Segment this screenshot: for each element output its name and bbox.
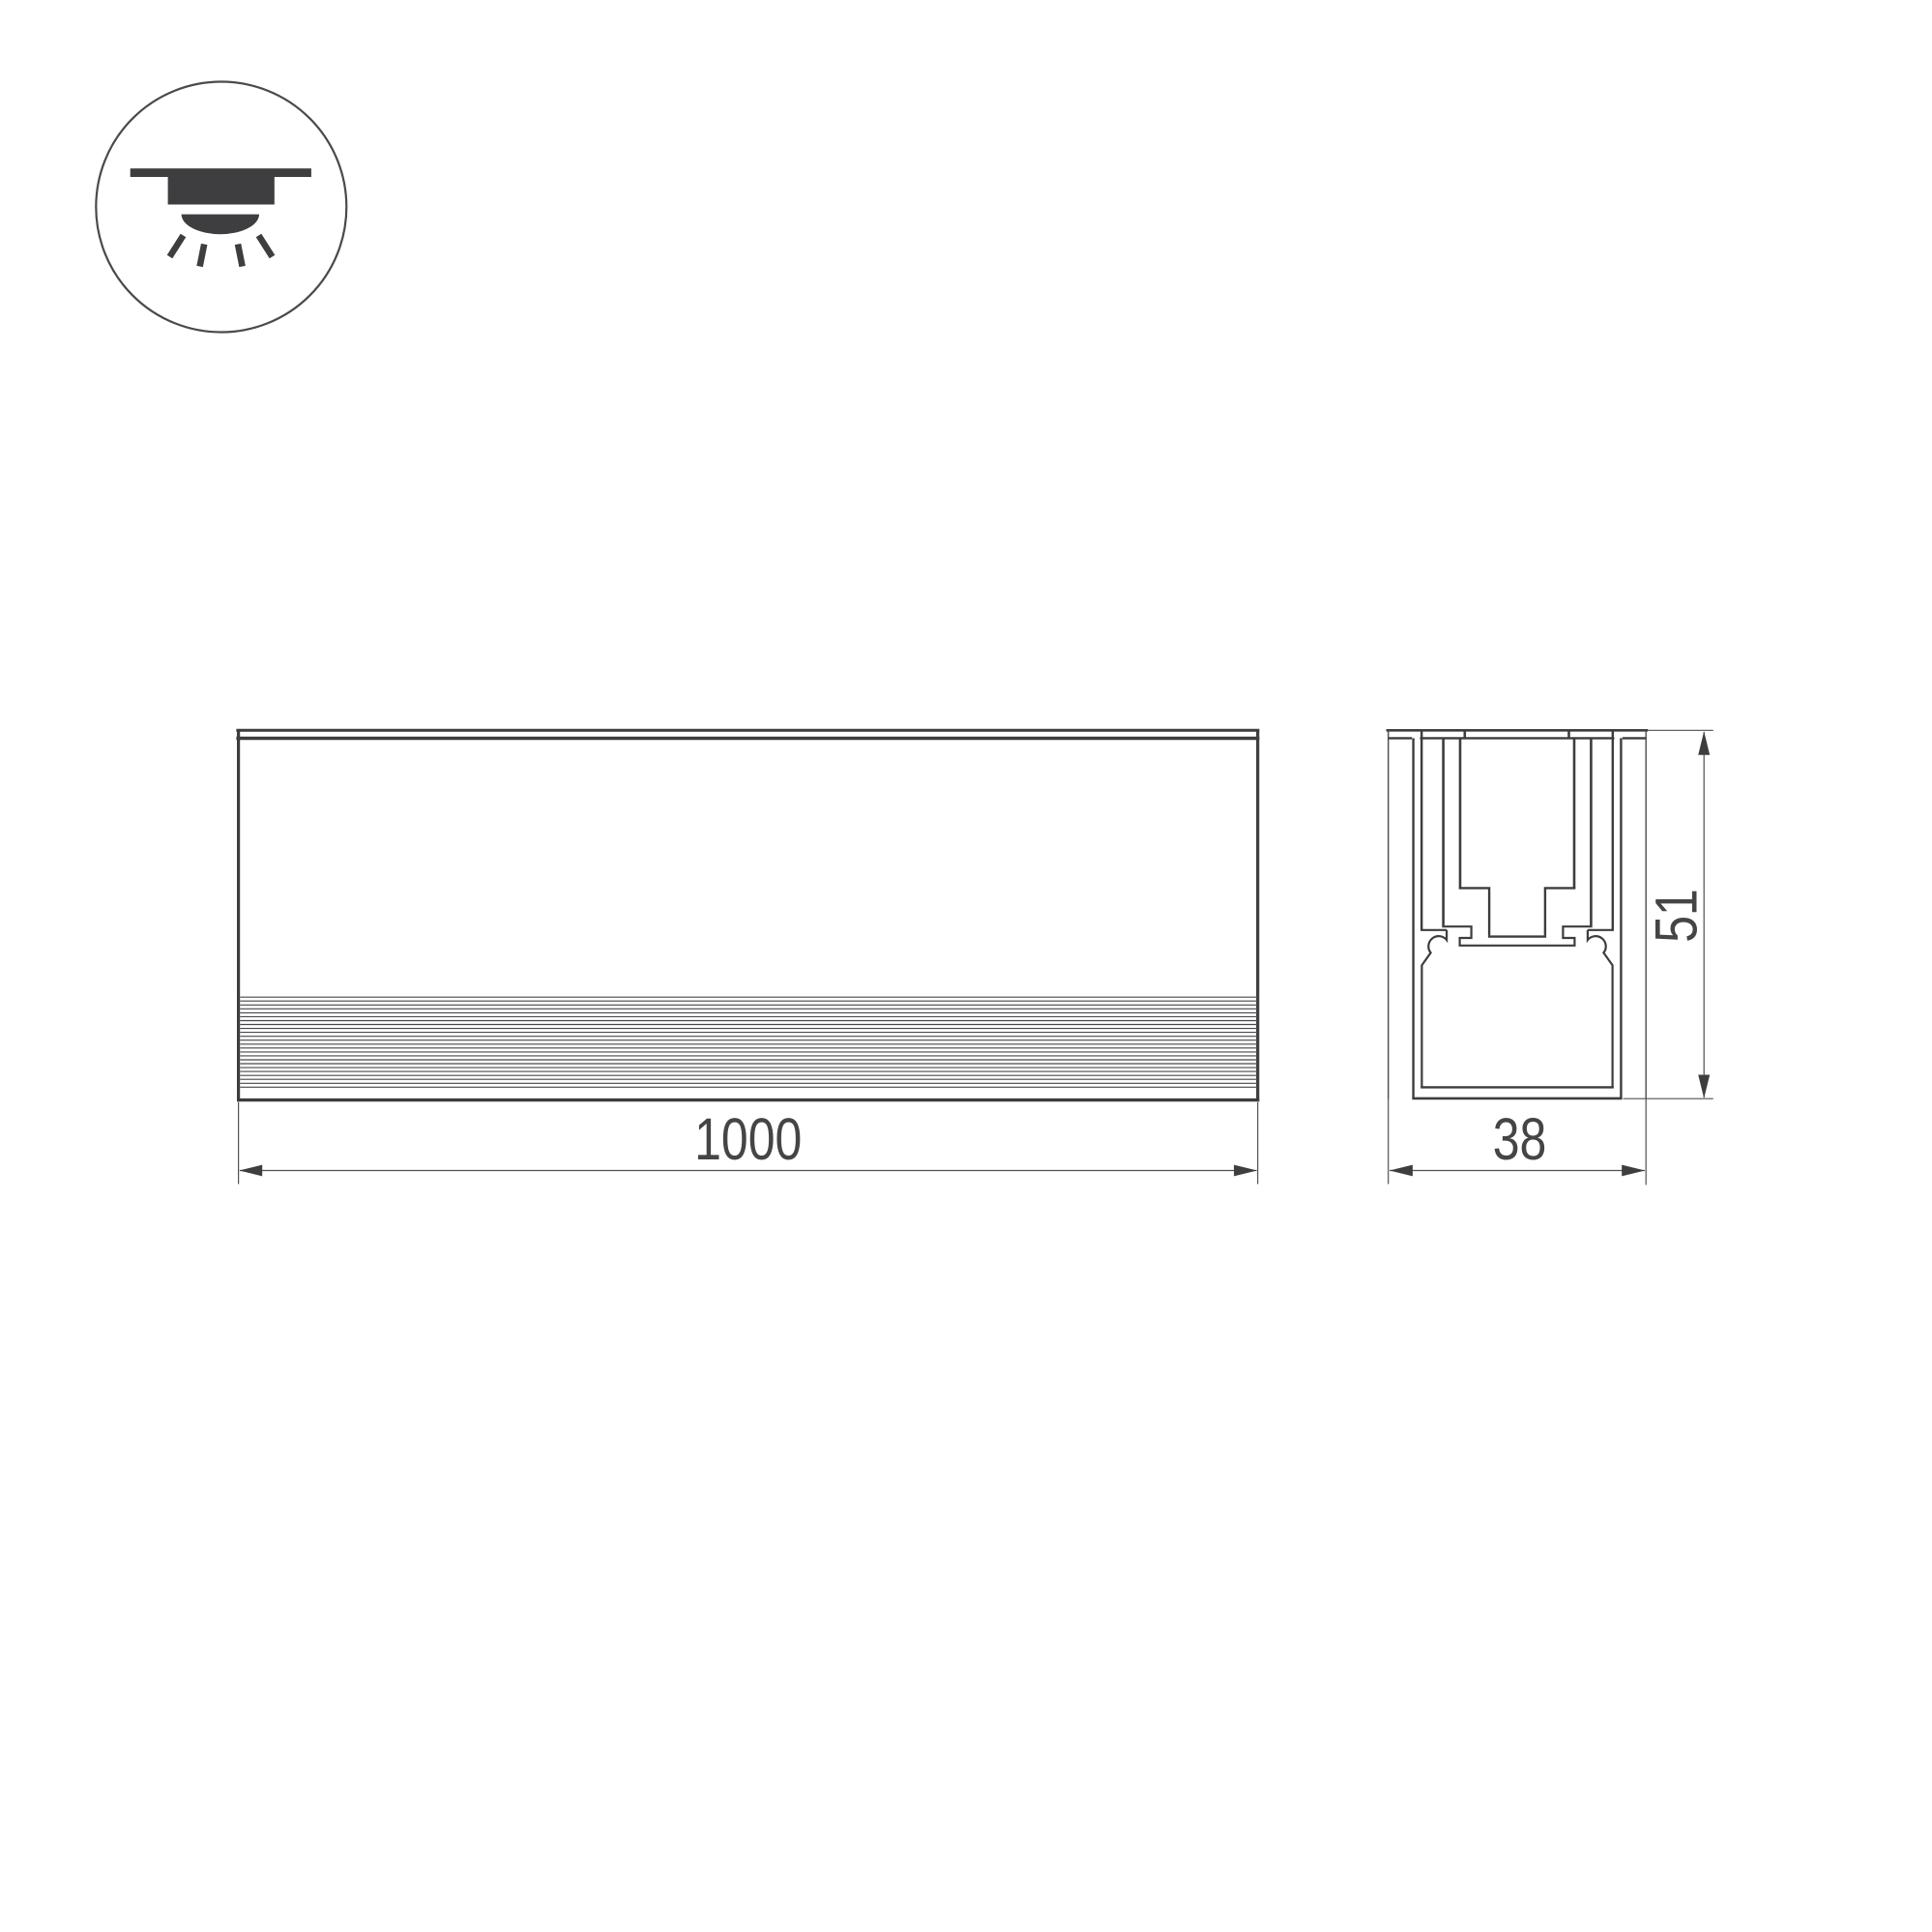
svg-text:1000: 1000 — [694, 1106, 802, 1172]
svg-text:38: 38 — [1493, 1106, 1547, 1172]
svg-text:51: 51 — [1644, 889, 1710, 943]
